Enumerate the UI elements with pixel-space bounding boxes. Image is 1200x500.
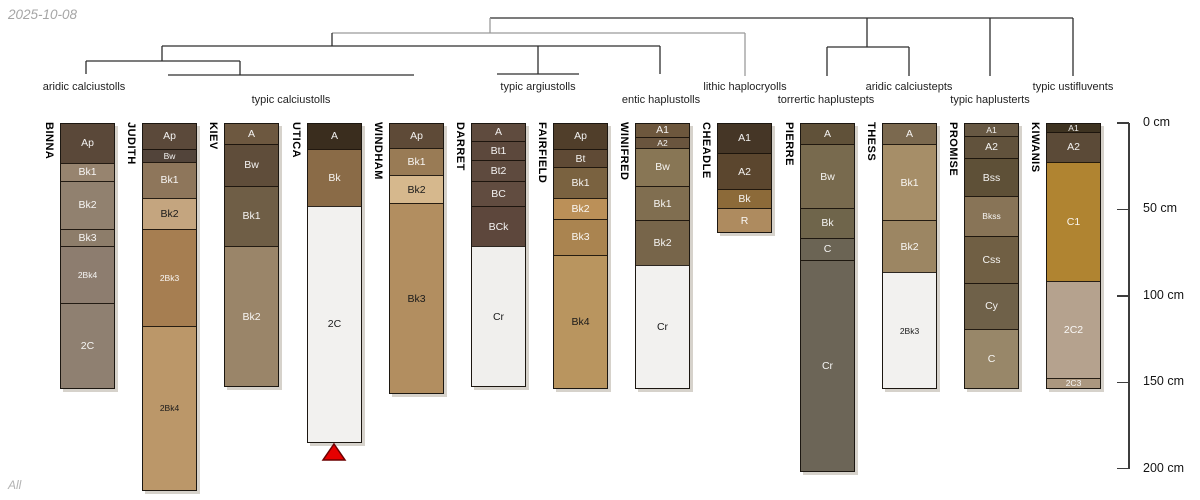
horizon-WINIFRED-Bk2: Bk2	[636, 220, 689, 265]
horizon-CHEADLE-R: R	[718, 208, 771, 232]
horizon-label: Ap	[410, 130, 423, 142]
profile-name-CHEADLE: CHEADLE	[700, 122, 712, 179]
profile-column-KIEV: ABwBk1Bk2	[224, 123, 279, 388]
depth-tick	[1117, 295, 1129, 297]
profile-column-CHEADLE: A1A2BkR	[717, 123, 772, 234]
horizon-label: 2Bk4	[78, 270, 97, 280]
horizon-JUDITH-Bk1: Bk1	[143, 162, 196, 198]
horizon-label: Bk1	[242, 210, 260, 222]
horizon-label: Bk3	[407, 293, 425, 305]
horizon-BINNA-Ap: Ap	[61, 124, 114, 164]
horizon-CHEADLE-A1: A1	[718, 124, 771, 153]
depth-tick	[1117, 468, 1129, 470]
horizon-label: BCk	[489, 221, 509, 233]
horizon-DARRET-Bt1: Bt1	[472, 141, 525, 160]
horizon-THESS-Bk1: Bk1	[883, 144, 936, 220]
profile-name-KIEV: KIEV	[207, 122, 219, 150]
profile-column-PIERRE: ABwBkCCr	[800, 123, 855, 472]
group-label-typic-haplusterts: typic haplusterts	[950, 94, 1029, 106]
depth-tick-label: 150 cm	[1143, 374, 1184, 388]
profile-column-PROMISE: A1A2BssBkssCssCyC	[964, 123, 1019, 389]
profile-name-PROMISE: PROMISE	[947, 122, 959, 176]
horizon-label: Bw	[244, 159, 259, 171]
horizon-label: Bk	[328, 172, 340, 184]
horizon-label: Bt2	[491, 165, 507, 177]
horizon-PIERRE-C: C	[801, 238, 854, 260]
red-triangle-marker	[321, 442, 347, 462]
profile-name-BINNA: BINNA	[43, 122, 55, 159]
horizon-label: Bk4	[571, 316, 589, 328]
horizon-UTICA-2C: 2C	[308, 206, 361, 441]
horizon-label: Ap	[574, 130, 587, 142]
depth-tick	[1117, 209, 1129, 211]
group-label-aridic-calciustepts: aridic calciustepts	[866, 81, 953, 93]
horizon-label: A1	[738, 132, 751, 144]
profile-name-UTICA: UTICA	[290, 122, 302, 158]
horizon-label: A1	[986, 125, 996, 135]
horizon-PROMISE-C: C	[965, 329, 1018, 388]
horizon-label: Cr	[493, 311, 504, 323]
horizon-label: Bw	[655, 161, 670, 173]
horizon-WINDHAM-Bk3: Bk3	[390, 203, 443, 393]
horizon-JUDITH-Ap: Ap	[143, 124, 196, 150]
group-label-torrertic-haplustepts: torrertic haplustepts	[778, 94, 875, 106]
horizon-DARRET-Bt2: Bt2	[472, 160, 525, 181]
horizon-JUDITH-2Bk4: 2Bk4	[143, 326, 196, 490]
horizon-label: Cr	[822, 360, 833, 372]
horizon-UTICA-Bk: Bk	[308, 149, 361, 206]
horizon-label: C1	[1067, 216, 1080, 228]
horizon-DARRET-A: A	[472, 124, 525, 141]
horizon-label: 2C	[328, 318, 341, 330]
horizon-label: Bk2	[900, 241, 918, 253]
horizon-DARRET-BC: BC	[472, 181, 525, 207]
horizon-label: Bk1	[78, 166, 96, 178]
horizon-label: 2Bk3	[900, 326, 919, 336]
horizon-label: C	[824, 243, 832, 255]
horizon-label: Bk1	[900, 177, 918, 189]
profile-name-THESS: THESS	[865, 122, 877, 161]
depth-tick-label: 200 cm	[1143, 461, 1184, 475]
horizon-label: Cr	[657, 321, 668, 333]
horizon-label: A2	[985, 141, 998, 153]
horizon-JUDITH-2Bk3: 2Bk3	[143, 229, 196, 326]
profile-column-FAIRFIELD: ApBtBk1Bk2Bk3Bk4	[553, 123, 608, 389]
horizon-UTICA-A: A	[308, 124, 361, 150]
horizon-WINIFRED-Cr: Cr	[636, 265, 689, 388]
horizon-KIEV-Bk2: Bk2	[225, 246, 278, 386]
horizon-KIWANIS-A2: A2	[1047, 132, 1100, 161]
group-label-typic-ustifluvents: typic ustifluvents	[1033, 81, 1114, 93]
horizon-PROMISE-A2: A2	[965, 136, 1018, 158]
horizon-JUDITH-Bw: Bw	[143, 149, 196, 161]
horizon-WINDHAM-Ap: Ap	[390, 124, 443, 148]
horizon-label: 2C3	[1066, 378, 1082, 388]
depth-tick-label: 50 cm	[1143, 201, 1177, 215]
horizon-label: Bk2	[242, 311, 260, 323]
horizon-PROMISE-Bkss: Bkss	[965, 196, 1018, 236]
horizon-label: A	[495, 126, 502, 138]
profile-column-UTICA: ABk2C	[307, 123, 362, 443]
horizon-label: Bt1	[491, 145, 507, 157]
horizon-FAIRFIELD-Bt: Bt	[554, 149, 607, 166]
horizon-label: Ap	[163, 130, 176, 142]
horizon-label: A2	[1067, 141, 1080, 153]
horizon-BINNA-2Bk4: 2Bk4	[61, 246, 114, 303]
depth-tick-label: 100 cm	[1143, 288, 1184, 302]
footer-label: All	[8, 478, 21, 492]
horizon-label: A	[824, 128, 831, 140]
horizon-KIEV-Bw: Bw	[225, 144, 278, 185]
profile-name-PIERRE: PIERRE	[783, 122, 795, 166]
horizon-label: A2	[738, 166, 751, 178]
horizon-PIERRE-A: A	[801, 124, 854, 145]
horizon-JUDITH-Bk2: Bk2	[143, 198, 196, 229]
horizon-WINDHAM-Bk1: Bk1	[390, 148, 443, 176]
profile-column-THESS: ABk1Bk22Bk3	[882, 123, 937, 389]
horizon-label: Bk1	[653, 198, 671, 210]
horizon-DARRET-BCk: BCk	[472, 206, 525, 246]
horizon-THESS-2Bk3: 2Bk3	[883, 272, 936, 388]
horizon-label: Bt	[576, 153, 586, 165]
horizon-label: A	[906, 128, 913, 140]
horizon-FAIRFIELD-Bk3: Bk3	[554, 219, 607, 255]
horizon-label: Bk	[738, 193, 750, 205]
horizon-FAIRFIELD-Bk2: Bk2	[554, 198, 607, 219]
horizon-WINIFRED-Bw: Bw	[636, 148, 689, 186]
group-label-typic-calciustolls: typic calciustolls	[252, 94, 331, 106]
soil-profile-dendrogram-figure: 2025-10-08 aridic calciustollstypic calc…	[0, 0, 1200, 500]
horizon-PROMISE-A1: A1	[965, 124, 1018, 136]
horizon-label: Bk1	[571, 177, 589, 189]
horizon-DARRET-Cr: Cr	[472, 246, 525, 386]
horizon-label: Bkss	[982, 211, 1000, 221]
horizon-CHEADLE-A2: A2	[718, 153, 771, 189]
horizon-label: 2C2	[1064, 324, 1083, 336]
profile-name-FAIRFIELD: FAIRFIELD	[536, 122, 548, 183]
profile-column-WINIFRED: A1A2BwBk1Bk2Cr	[635, 123, 690, 389]
depth-tick-label: 0 cm	[1143, 115, 1170, 129]
horizon-label: Bw	[820, 171, 835, 183]
horizon-BINNA-Bk1: Bk1	[61, 163, 114, 180]
group-label-entic-haplustolls: entic haplustolls	[622, 94, 700, 106]
horizon-label: Bss	[983, 172, 1001, 184]
horizon-label: Bk1	[160, 174, 178, 186]
horizon-FAIRFIELD-Ap: Ap	[554, 124, 607, 150]
horizon-label: Bk1	[407, 156, 425, 168]
horizon-label: Bk3	[571, 231, 589, 243]
horizon-WINIFRED-A2: A2	[636, 137, 689, 147]
horizon-CHEADLE-Bk: Bk	[718, 189, 771, 208]
horizon-PIERRE-Cr: Cr	[801, 260, 854, 471]
horizon-label: Bk2	[78, 199, 96, 211]
horizon-FAIRFIELD-Bk4: Bk4	[554, 255, 607, 388]
horizon-PROMISE-Css: Css	[965, 236, 1018, 283]
horizon-label: Bk	[821, 217, 833, 229]
depth-tick	[1117, 382, 1129, 384]
horizon-BINNA-Bk3: Bk3	[61, 229, 114, 246]
profile-name-KIWANIS: KIWANIS	[1029, 122, 1041, 173]
depth-tick	[1117, 122, 1129, 124]
horizon-label: Bk2	[653, 237, 671, 249]
horizon-label: A1	[1068, 124, 1078, 133]
horizon-PIERRE-Bw: Bw	[801, 144, 854, 208]
profile-column-JUDITH: ApBwBk1Bk22Bk32Bk4	[142, 123, 197, 491]
profile-name-DARRET: DARRET	[454, 122, 466, 171]
profile-name-WINIFRED: WINIFRED	[618, 122, 630, 180]
horizon-label: Css	[982, 254, 1000, 266]
horizon-label: Bk2	[160, 208, 178, 220]
horizon-label: R	[741, 215, 749, 227]
group-label-aridic-calciustolls: aridic calciustolls	[43, 81, 126, 93]
horizon-WINIFRED-Bk1: Bk1	[636, 186, 689, 221]
horizon-label: Bk2	[571, 203, 589, 215]
horizon-label: Bk3	[78, 232, 96, 244]
profile-column-DARRET: ABt1Bt2BCBCkCr	[471, 123, 526, 388]
horizon-label: A1	[656, 124, 669, 136]
profile-name-WINDHAM: WINDHAM	[372, 122, 384, 180]
horizon-label: Bw	[164, 151, 176, 161]
horizon-WINIFRED-A1: A1	[636, 124, 689, 138]
horizon-label: 2Bk4	[160, 403, 179, 413]
horizon-WINDHAM-Bk2: Bk2	[390, 175, 443, 203]
horizon-KIWANIS-2C3: 2C3	[1047, 378, 1100, 388]
horizon-THESS-Bk2: Bk2	[883, 220, 936, 272]
horizon-KIWANIS-2C2: 2C2	[1047, 281, 1100, 378]
horizon-THESS-A: A	[883, 124, 936, 145]
horizon-label: Ap	[81, 137, 94, 149]
horizon-PIERRE-Bk: Bk	[801, 208, 854, 237]
horizon-label: Bk2	[407, 184, 425, 196]
horizon-label: 2C	[81, 340, 94, 352]
horizon-KIWANIS-A1: A1	[1047, 124, 1100, 133]
horizon-label: A2	[657, 138, 667, 148]
group-label-lithic-haplocryolls: lithic haplocryolls	[703, 81, 786, 93]
profile-name-JUDITH: JUDITH	[125, 122, 137, 165]
horizon-FAIRFIELD-Bk1: Bk1	[554, 167, 607, 198]
horizon-label: 2Bk3	[160, 273, 179, 283]
horizon-BINNA-Bk2: Bk2	[61, 181, 114, 229]
group-label-typic-argiustolls: typic argiustolls	[500, 81, 575, 93]
horizon-KIEV-A: A	[225, 124, 278, 145]
profile-column-WINDHAM: ApBk1Bk2Bk3	[389, 123, 444, 395]
horizon-label: A	[248, 128, 255, 140]
horizon-PROMISE-Cy: Cy	[965, 283, 1018, 330]
profile-column-BINNA: ApBk1Bk2Bk32Bk42C	[60, 123, 115, 389]
horizon-BINNA-2C: 2C	[61, 303, 114, 388]
horizon-label: C	[988, 353, 996, 365]
horizon-KIWANIS-C1: C1	[1047, 162, 1100, 281]
horizon-KIEV-Bk1: Bk1	[225, 186, 278, 246]
horizon-PROMISE-Bss: Bss	[965, 158, 1018, 196]
horizon-label: BC	[491, 188, 506, 200]
horizon-label: A	[331, 130, 338, 142]
profile-column-KIWANIS: A1A2C12C22C3	[1046, 123, 1101, 389]
horizon-label: Cy	[985, 300, 998, 312]
